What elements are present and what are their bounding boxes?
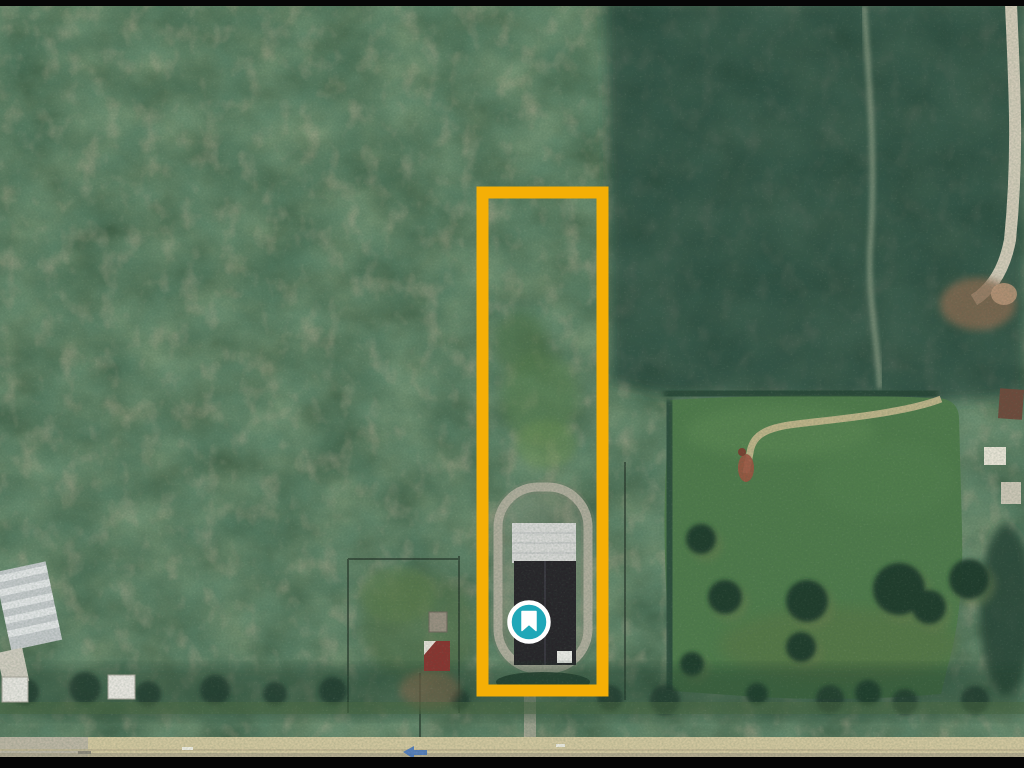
letterbox-top xyxy=(0,0,1024,6)
satellite-imagery xyxy=(0,0,1024,768)
satellite-map xyxy=(0,0,1024,768)
letterbox-bottom xyxy=(0,757,1024,768)
map-viewport[interactable] xyxy=(0,0,1024,768)
grain-shadows xyxy=(0,0,1024,768)
location-marker[interactable] xyxy=(510,603,549,642)
